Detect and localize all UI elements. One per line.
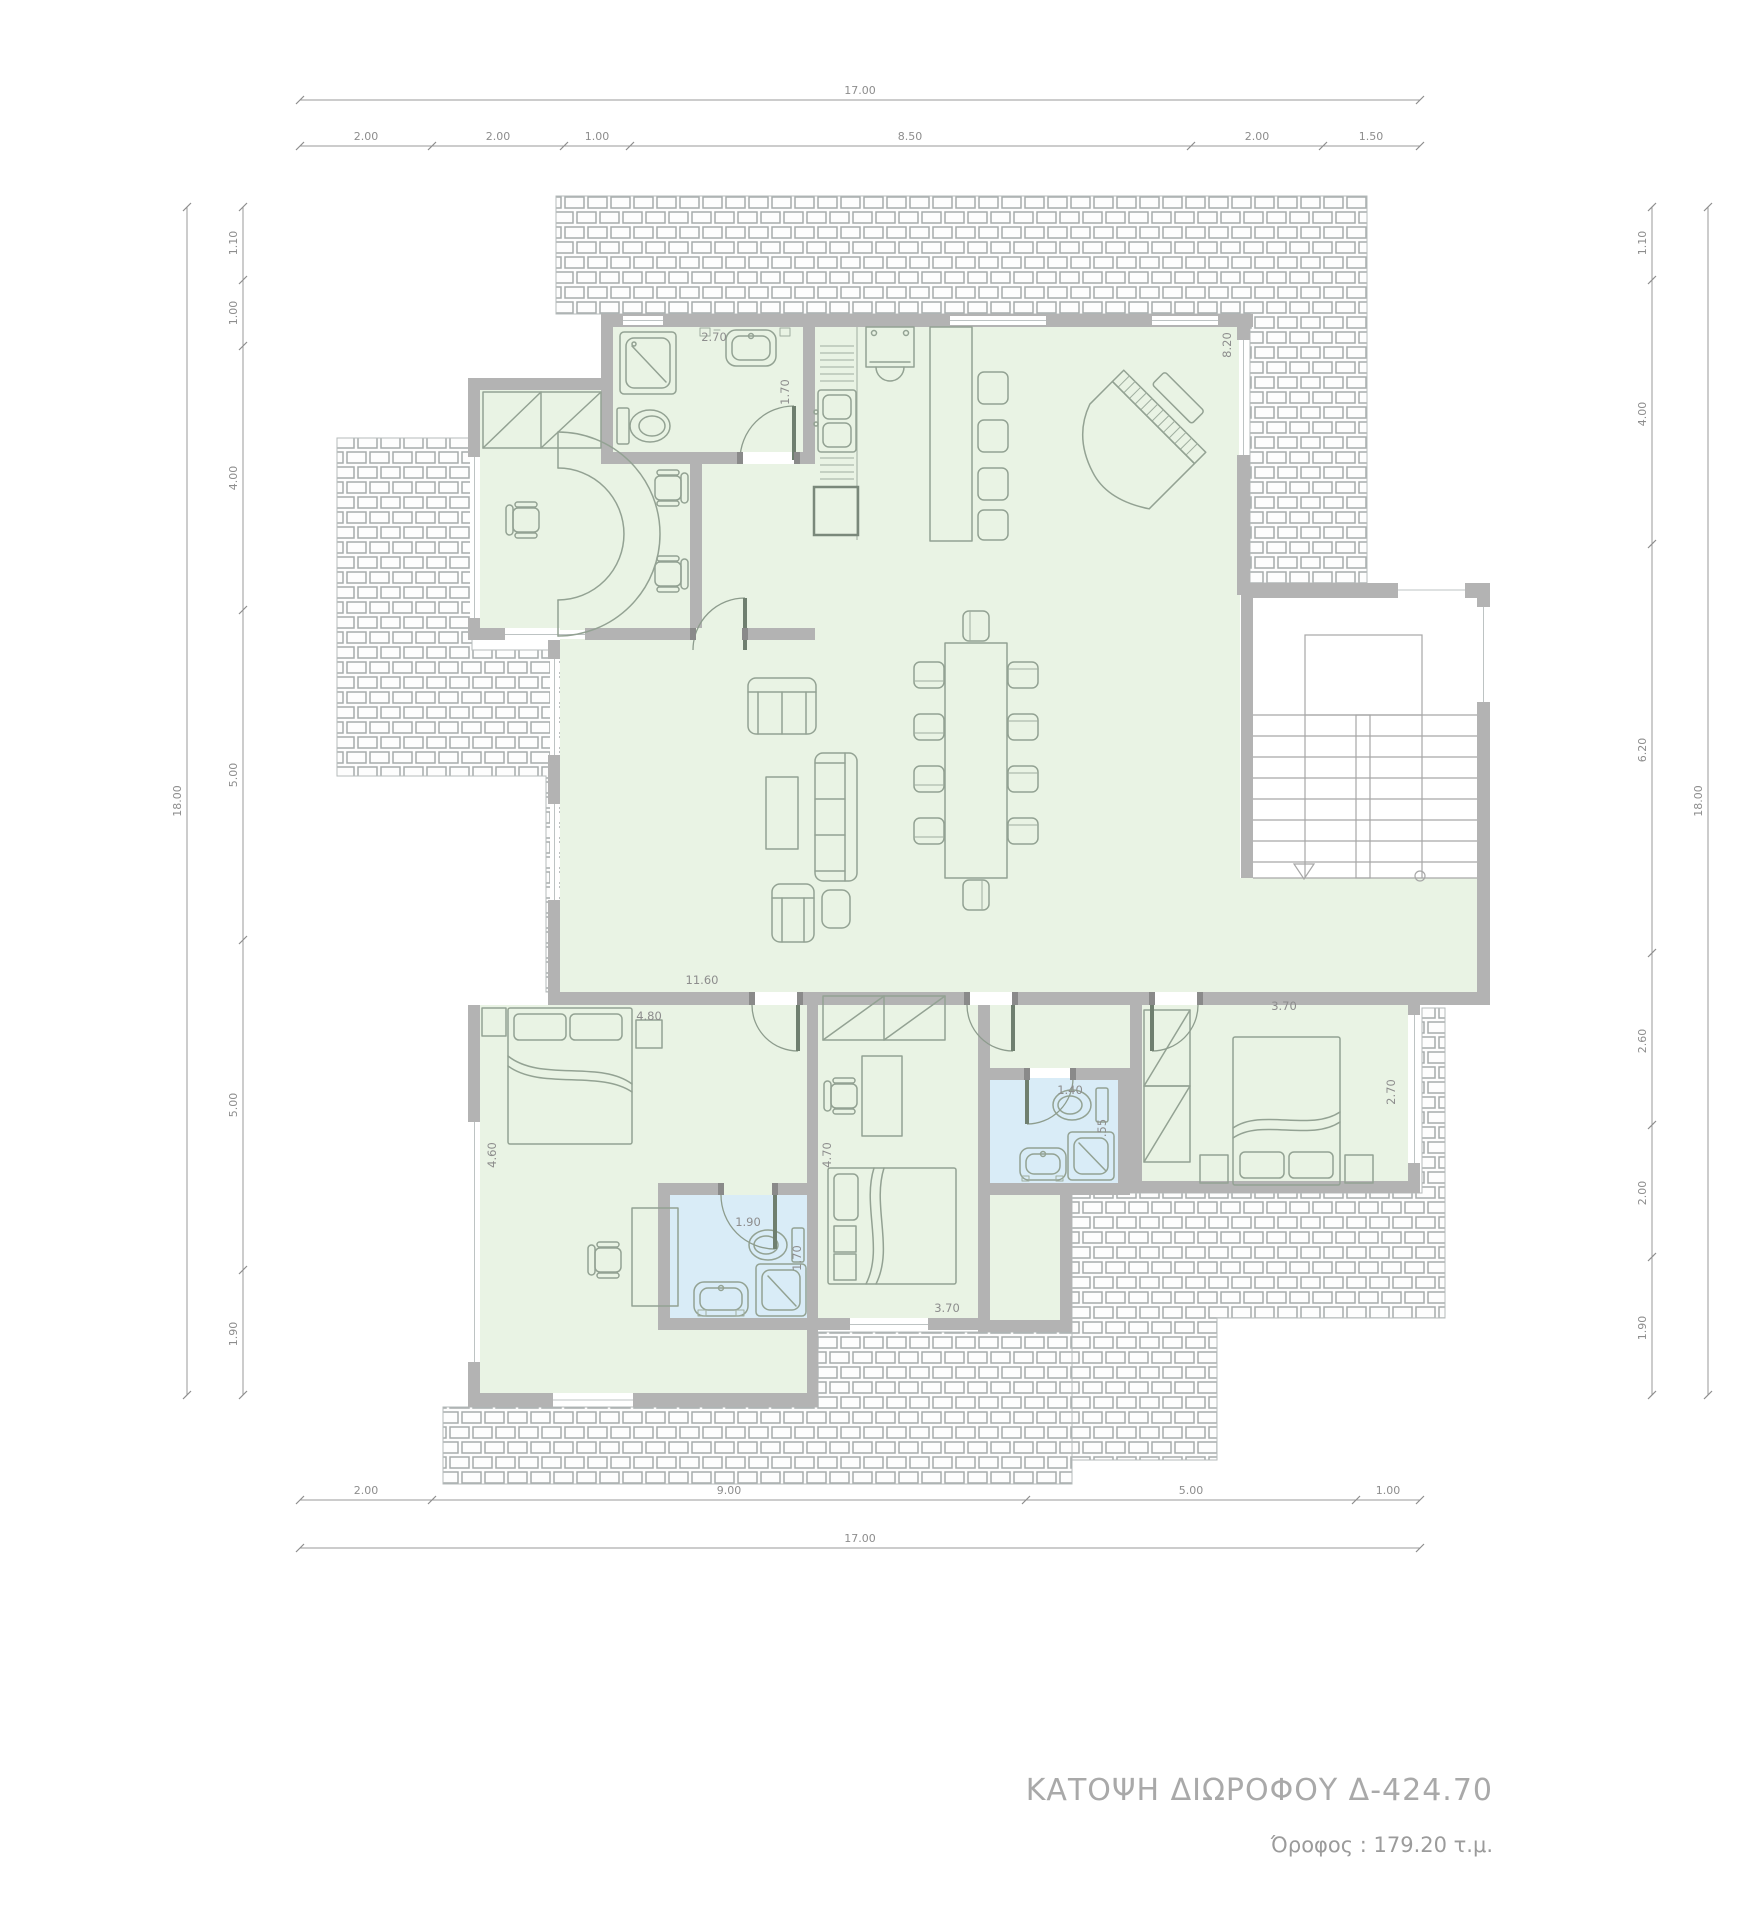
label-bath-mid-width: 1.40 — [1057, 1083, 1083, 1097]
dim-bottom-overall-label: 17.00 — [844, 1532, 876, 1545]
label-bath-left-door: 1.90 — [735, 1215, 761, 1229]
floor-kitchen-strip — [815, 327, 1240, 480]
label-bedroom-mid-width: 3.70 — [934, 1301, 960, 1315]
window — [1152, 316, 1218, 325]
dim-right-seg: 2.60 — [1636, 1029, 1649, 1054]
label-bath-left-shower: 1.70 — [790, 1245, 804, 1271]
dim-bottom-overall: 17.00 — [296, 1532, 1424, 1552]
title-block: ΚΑΤΟΨΗ ΔΙΩΡΟΦΟΥ Δ-424.70 Όροφος : 179.20… — [1026, 1773, 1493, 1857]
dim-left-overall: 18.00 — [171, 203, 191, 1399]
floor-plan-sheet: 2.70 1.70 8.20 11.60 4.80 4.60 1.90 1.70… — [0, 0, 1743, 1920]
page-title: ΚΑΤΟΨΗ ΔΙΩΡΟΦΟΥ Δ-424.70 — [1026, 1773, 1493, 1808]
floor-bath-left — [670, 1195, 807, 1318]
dim-right-seg: 4.00 — [1636, 402, 1649, 427]
label-bath-top-width: 2.70 — [701, 330, 727, 344]
window — [470, 457, 479, 618]
dim-left-overall-label: 18.00 — [171, 785, 184, 817]
floor-plan-svg: 2.70 1.70 8.20 11.60 4.80 4.60 1.90 1.70… — [0, 0, 1743, 1920]
dim-bottom-seg: 2.00 — [354, 1484, 379, 1497]
dim-top-overall-label: 17.00 — [844, 84, 876, 97]
dim-top-seg: 2.00 — [486, 130, 511, 143]
dim-top-seg: 8.50 — [898, 130, 923, 143]
dim-top-segments: 2.00 2.00 1.00 8.50 2.00 1.50 — [296, 130, 1424, 150]
dim-left-seg: 1.10 — [227, 231, 240, 256]
dim-top-overall: 17.00 — [296, 84, 1424, 104]
window — [550, 659, 559, 755]
window — [623, 316, 663, 325]
dim-right-seg: 1.90 — [1636, 1316, 1649, 1341]
label-living-height: 8.20 — [1220, 332, 1234, 358]
window — [1398, 585, 1465, 596]
dim-left-seg: 5.00 — [227, 763, 240, 788]
dim-left-seg: 1.00 — [227, 301, 240, 326]
dim-top-seg: 1.00 — [585, 130, 610, 143]
dim-top-seg: 2.00 — [354, 130, 379, 143]
window — [850, 1320, 928, 1329]
window — [553, 1395, 633, 1405]
dim-bottom-seg: 1.00 — [1376, 1484, 1401, 1497]
dim-top-seg: 2.00 — [1245, 130, 1270, 143]
label-bedroom-right-width: 3.70 — [1271, 999, 1297, 1013]
floor-understair — [1240, 878, 1490, 992]
dim-right-overall: 18.00 — [1692, 203, 1712, 1399]
floor-nook — [988, 1195, 1060, 1320]
label-living-width: 11.60 — [686, 973, 719, 987]
dim-left-seg: 1.90 — [227, 1322, 240, 1347]
window — [1239, 340, 1248, 455]
window — [1479, 607, 1488, 702]
dim-right-segments: 1.10 4.00 6.20 2.60 2.00 1.90 — [1636, 203, 1656, 1399]
window — [950, 316, 1046, 325]
dim-bottom-seg: 9.00 — [717, 1484, 742, 1497]
label-bedroom-left-height: 4.60 — [485, 1142, 499, 1168]
dim-right-seg: 6.20 — [1636, 738, 1649, 763]
floor-vestibule — [940, 1005, 1140, 1068]
label-bath-mid-depth: .55 — [1095, 1119, 1109, 1137]
dim-left-seg: 5.00 — [227, 1093, 240, 1118]
floor-living — [560, 464, 1240, 992]
window — [470, 1122, 479, 1362]
dim-right-overall-label: 18.00 — [1692, 785, 1705, 817]
dim-right-seg: 2.00 — [1636, 1181, 1649, 1206]
label-bedroom-mid-height: 4.70 — [820, 1142, 834, 1168]
window — [1410, 1015, 1419, 1163]
floor-stairwell — [1253, 598, 1477, 878]
dim-right-seg: 1.10 — [1636, 231, 1649, 256]
dim-left-segments: 1.10 1.00 4.00 5.00 5.00 1.90 — [227, 203, 247, 1399]
dim-top-seg: 1.50 — [1359, 130, 1384, 143]
dim-left-seg: 4.00 — [227, 466, 240, 491]
window — [550, 804, 559, 900]
label-bath-top-door: 1.70 — [778, 379, 792, 405]
page-subtitle: Όροφος : 179.20 τ.μ. — [1270, 1833, 1493, 1857]
label-bedroom-right-height: 2.70 — [1384, 1079, 1398, 1105]
label-bedroom-left-width: 4.80 — [636, 1009, 662, 1023]
dim-bottom-segments: 2.00 9.00 5.00 1.00 — [296, 1484, 1424, 1504]
dim-bottom-seg: 5.00 — [1179, 1484, 1204, 1497]
